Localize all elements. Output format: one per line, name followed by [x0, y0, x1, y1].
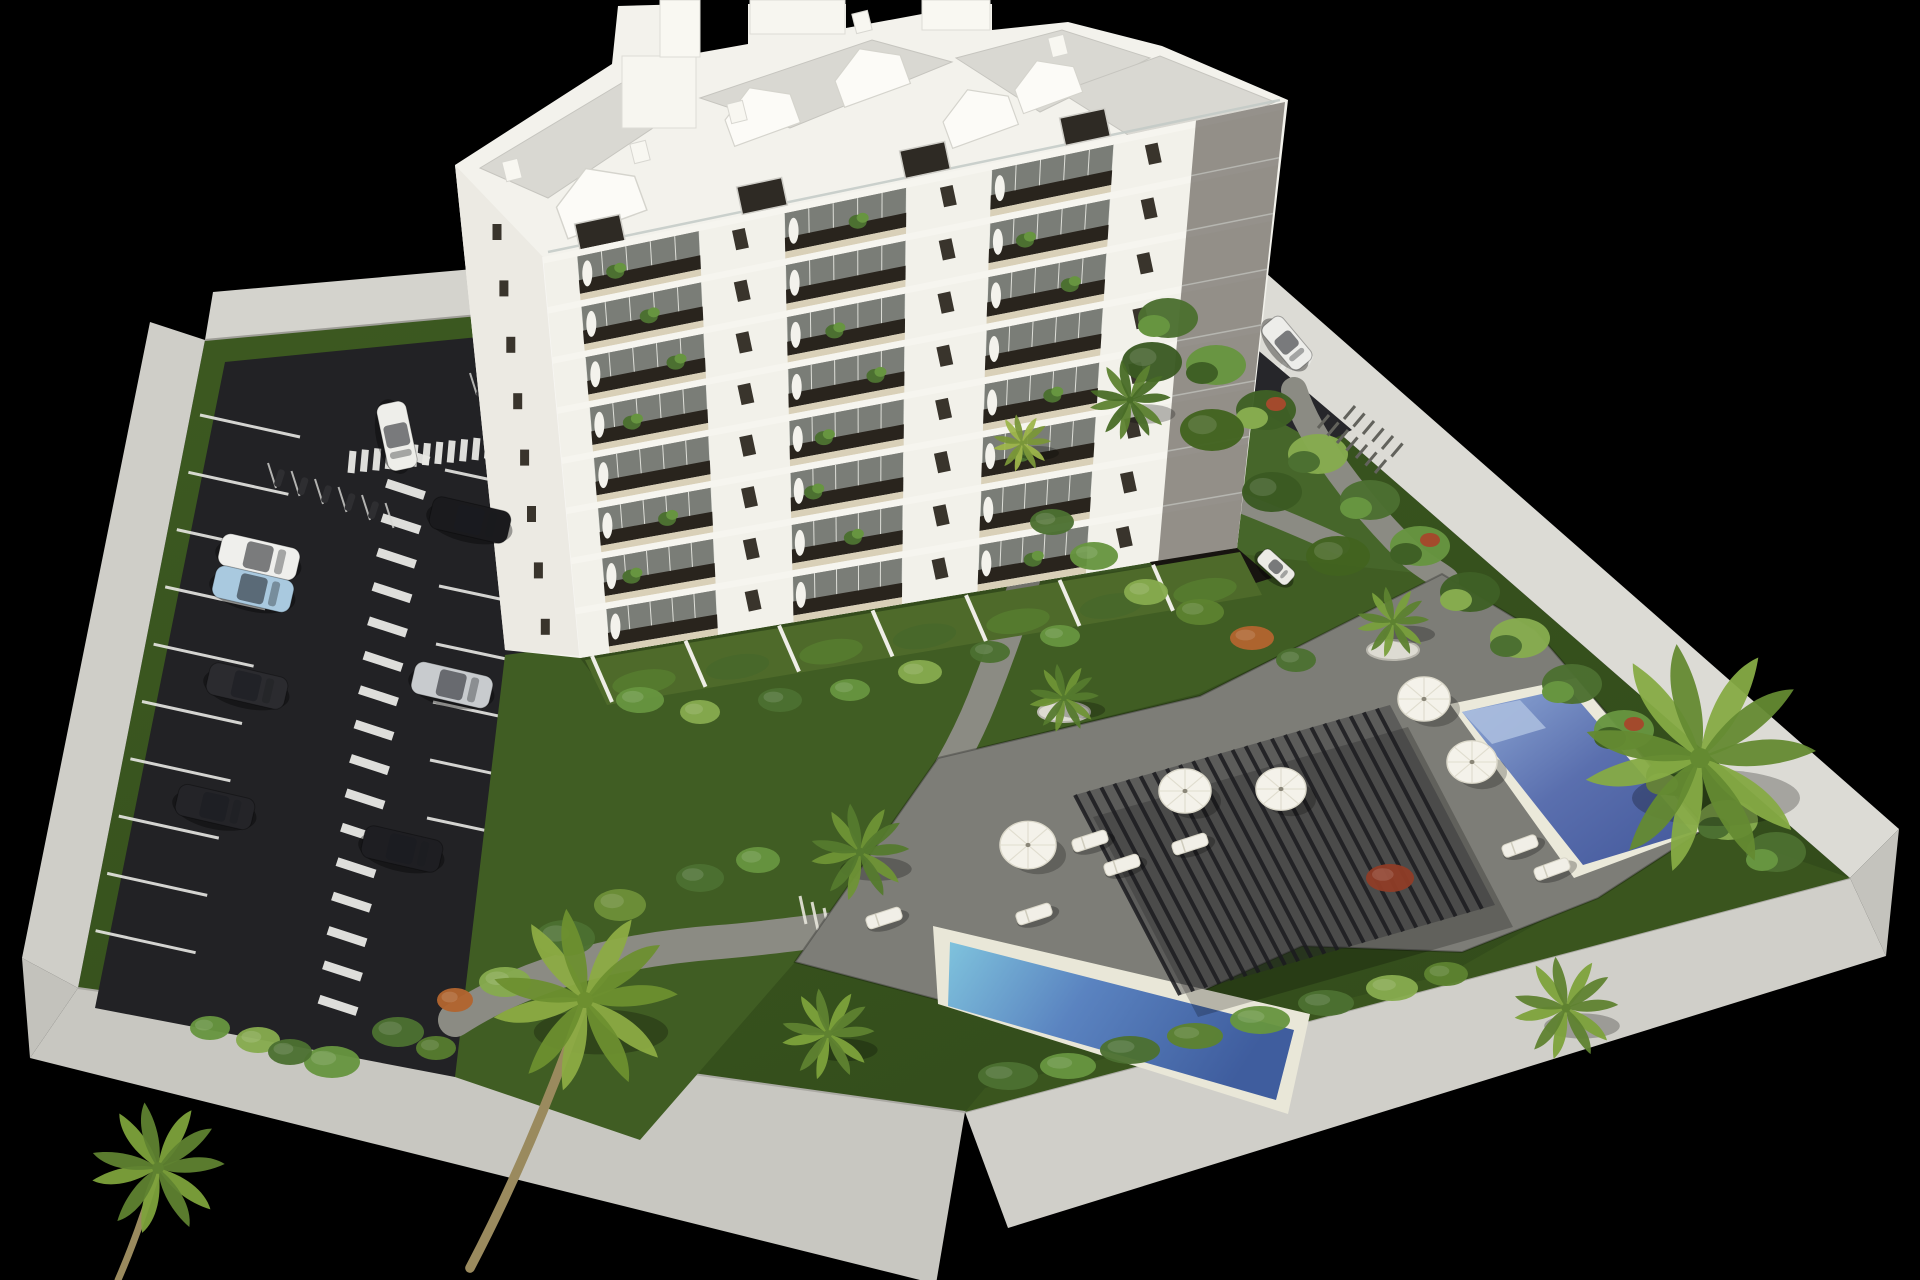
shrub-highlight: [1373, 979, 1396, 991]
shrub-highlight: [311, 1051, 336, 1065]
balcony-plant: [1032, 551, 1044, 561]
railing-mullion: [789, 421, 790, 445]
balcony-plant: [1024, 232, 1036, 242]
shrub-highlight: [682, 868, 704, 881]
rendered-image: [0, 0, 1920, 1280]
balcony-plant: [614, 263, 626, 273]
railing-mullion: [785, 265, 786, 289]
hedge-cluster: [1490, 635, 1522, 657]
shrub-highlight: [1174, 1027, 1199, 1039]
crosswalk-stripe: [463, 439, 465, 461]
shrub-highlight: [1108, 1040, 1135, 1053]
window: [499, 280, 508, 296]
balcony-wing-wall: [995, 175, 1005, 201]
hedge-cluster: [1138, 315, 1170, 337]
balcony-wing-wall: [991, 282, 1001, 308]
parasol-pole: [1026, 843, 1031, 847]
window: [541, 619, 550, 635]
stair-tower: [622, 56, 696, 128]
balcony-plant: [833, 322, 845, 332]
window: [513, 393, 522, 409]
balcony-wing-wall: [610, 614, 620, 640]
shrub-highlight: [379, 1022, 402, 1036]
hedge-cluster: [1288, 451, 1320, 473]
shrub-highlight: [1238, 1010, 1265, 1023]
car-glass: [383, 422, 411, 450]
railing-mullion: [791, 525, 792, 549]
balcony-plant: [631, 414, 643, 424]
balcony-wing-wall: [594, 412, 604, 438]
crosswalk-stripe: [450, 441, 452, 463]
balcony-wing-wall: [790, 270, 800, 296]
crosswalk-stripe: [475, 438, 477, 460]
balcony-wing-wall: [791, 322, 801, 348]
crosswalk-stripe: [376, 448, 378, 470]
balcony-wing-wall: [981, 550, 991, 576]
balcony-wing-wall: [792, 374, 802, 400]
railing-mullion: [790, 473, 791, 497]
window: [520, 450, 529, 466]
balcony-wing-wall: [793, 426, 803, 452]
palm-crown: [824, 1030, 832, 1038]
shrub-highlight: [904, 664, 924, 675]
balcony-wing-wall: [606, 563, 616, 589]
palm-crown: [152, 1162, 164, 1174]
balcony-wing-wall: [598, 462, 608, 488]
shrub-highlight: [1045, 628, 1063, 638]
shrub-highlight: [442, 992, 458, 1003]
shrub-highlight: [1047, 1057, 1072, 1069]
railing-mullion: [787, 317, 788, 341]
parasol-pole: [1422, 697, 1427, 701]
stair-tower: [750, 0, 845, 34]
shrub-highlight: [986, 1066, 1013, 1079]
shrub-highlight: [195, 1020, 213, 1031]
shrub-highlight: [1305, 994, 1330, 1006]
flowering-shrub: [1266, 397, 1286, 411]
stair-tower: [660, 0, 700, 57]
shrub-highlight: [685, 704, 703, 715]
balcony-wing-wall: [602, 513, 612, 539]
shrub-highlight: [835, 682, 853, 692]
balcony-plant: [666, 510, 678, 520]
shrub-highlight: [1036, 513, 1056, 525]
railing-mullion: [784, 213, 785, 237]
balcony-plant: [648, 307, 660, 317]
parasol-pole: [1470, 760, 1475, 764]
railing-mullion: [788, 369, 789, 393]
flowering-shrub: [1624, 717, 1644, 731]
balcony-plant: [823, 429, 835, 439]
balcony-wing-wall: [983, 497, 993, 523]
balcony-wing-wall: [789, 218, 799, 244]
balcony-wing-wall: [794, 478, 804, 504]
shrub-highlight: [622, 691, 644, 703]
hedge-cluster: [1542, 681, 1574, 703]
balcony-wing-wall: [985, 443, 995, 469]
palm-crown: [856, 848, 865, 857]
balcony-plant: [852, 529, 864, 539]
hedge-cluster: [1440, 589, 1472, 611]
shrub-highlight: [274, 1043, 294, 1055]
shrub-highlight: [1188, 415, 1217, 434]
window: [534, 562, 543, 578]
balcony-wing-wall: [586, 311, 596, 337]
hedge-cluster: [1340, 497, 1372, 519]
shrub-highlight: [742, 851, 762, 863]
shrub-highlight: [1182, 603, 1204, 615]
shrub-highlight: [1281, 652, 1299, 663]
balcony-plant: [812, 483, 824, 493]
shrub-highlight: [1372, 868, 1394, 881]
palm-crown: [1690, 748, 1710, 768]
stair-tower: [922, 0, 990, 30]
balcony-plant: [874, 367, 886, 377]
palm-crown: [1061, 695, 1067, 701]
balcony-plant: [1051, 387, 1063, 397]
palm-crown: [1390, 619, 1396, 625]
parasol-pole: [1279, 787, 1284, 791]
shrub-highlight: [975, 644, 993, 654]
crosswalk-stripe: [438, 442, 440, 464]
shrub-highlight: [421, 1040, 439, 1051]
palm-crown: [1020, 441, 1025, 446]
palm-crown: [1127, 397, 1134, 404]
flowering-shrub: [1420, 533, 1440, 547]
balcony-wing-wall: [582, 260, 592, 286]
balcony-wing-wall: [795, 530, 805, 556]
shrub-highlight: [1430, 966, 1450, 977]
window: [527, 506, 536, 522]
balcony-wing-wall: [987, 390, 997, 416]
balcony-plant: [675, 354, 687, 364]
parasol-pole: [1183, 789, 1188, 793]
balcony-wing-wall: [590, 361, 600, 387]
crosswalk-stripe: [351, 451, 353, 473]
shrub-highlight: [1236, 630, 1256, 641]
crosswalk-stripe: [425, 443, 427, 465]
palm-crown: [577, 992, 593, 1008]
railing-mullion: [793, 577, 794, 601]
shrub-highlight: [1250, 478, 1277, 496]
balcony-plant: [1069, 276, 1081, 286]
balcony-plant: [630, 568, 642, 578]
shrub-highlight: [601, 894, 624, 908]
shrub-highlight: [764, 692, 784, 703]
crosswalk-stripe: [363, 450, 365, 472]
palm-crown: [1562, 1004, 1571, 1013]
shrub-highlight: [1130, 583, 1150, 595]
shrub-highlight: [242, 1031, 262, 1043]
hedge-cluster: [1186, 362, 1218, 384]
window: [493, 224, 502, 240]
window: [506, 337, 515, 353]
balcony-wing-wall: [989, 336, 999, 362]
shrub-highlight: [1314, 542, 1343, 560]
balcony-wing-wall: [796, 582, 806, 608]
balcony-wing-wall: [993, 229, 1003, 255]
hedge-cluster: [1390, 543, 1422, 565]
balcony-plant: [857, 213, 869, 223]
shrub-highlight: [1130, 348, 1157, 366]
shrub-highlight: [1076, 546, 1098, 559]
